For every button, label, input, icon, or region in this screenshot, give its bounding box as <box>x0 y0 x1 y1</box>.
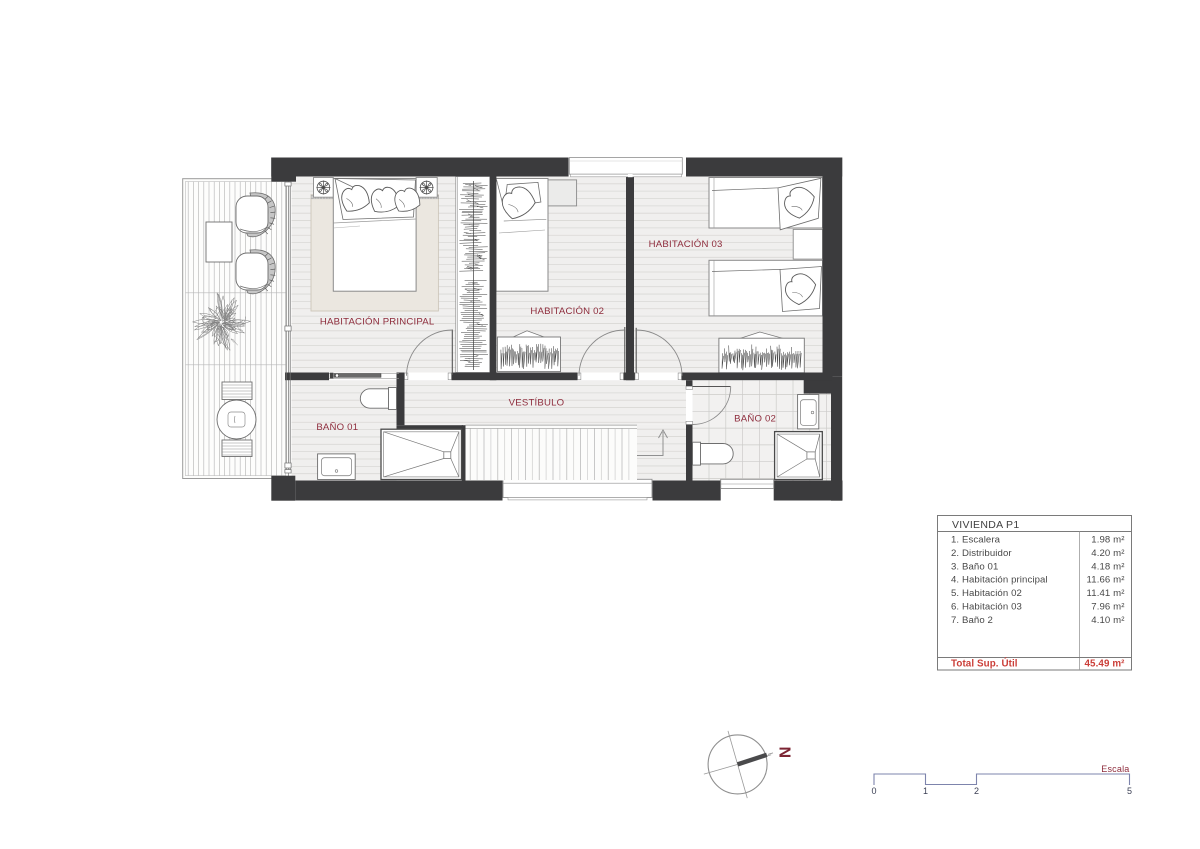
svg-text:4.20 m²: 4.20 m² <box>1091 548 1125 559</box>
svg-text:1. Escalera: 1. Escalera <box>951 535 1001 546</box>
svg-text:Escala: Escala <box>1101 764 1129 774</box>
svg-text:11.66 m²: 11.66 m² <box>1087 575 1126 586</box>
svg-text:2: 2 <box>974 786 979 796</box>
svg-text:HABITACIÓN 02: HABITACIÓN 02 <box>530 306 604 317</box>
svg-text:45.49 m²: 45.49 m² <box>1084 659 1125 670</box>
svg-text:11.41 m²: 11.41 m² <box>1087 588 1126 599</box>
svg-text:BAÑO 01: BAÑO 01 <box>316 422 358 433</box>
svg-text:N: N <box>776 747 793 759</box>
svg-text:1: 1 <box>923 786 928 796</box>
svg-text:1.98 m²: 1.98 m² <box>1091 535 1125 546</box>
svg-text:7.96 m²: 7.96 m² <box>1091 602 1125 613</box>
svg-text:5. Habitación 02: 5. Habitación 02 <box>951 588 1022 599</box>
svg-text:0: 0 <box>871 786 876 796</box>
svg-text:2. Distribuidor: 2. Distribuidor <box>951 548 1012 559</box>
svg-text:4.10 m²: 4.10 m² <box>1091 615 1125 626</box>
svg-text:6. Habitación 03: 6. Habitación 03 <box>951 602 1022 613</box>
svg-text:4. Habitación principal: 4. Habitación principal <box>951 575 1048 586</box>
svg-text:5: 5 <box>1127 786 1132 796</box>
svg-text:VESTÍBULO: VESTÍBULO <box>509 398 565 409</box>
svg-text:4.18 m²: 4.18 m² <box>1091 561 1125 572</box>
svg-text:VIVIENDA P1: VIVIENDA P1 <box>952 519 1020 531</box>
svg-text:7. Baño 2: 7. Baño 2 <box>951 615 993 626</box>
svg-text:3. Baño 01: 3. Baño 01 <box>951 561 998 572</box>
svg-text:HABITACIÓN 03: HABITACIÓN 03 <box>649 239 723 250</box>
svg-text:BAÑO 02: BAÑO 02 <box>734 414 776 425</box>
svg-text:Total Sup. Útil: Total Sup. Útil <box>951 658 1018 670</box>
svg-text:HABITACIÓN PRINCIPAL: HABITACIÓN PRINCIPAL <box>320 317 435 328</box>
